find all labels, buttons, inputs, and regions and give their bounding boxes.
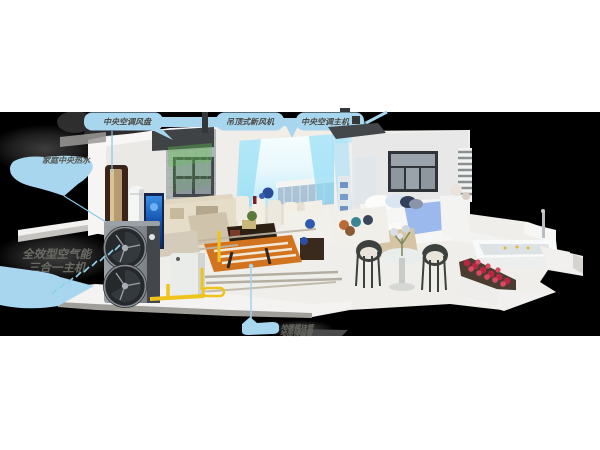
svg-text:全效型空气能: 全效型空气能 [22,247,92,261]
svg-text:家庭中央热水: 家庭中央热水 [42,156,91,165]
svg-text:中央空调风盘: 中央空调风盘 [103,118,152,127]
svg-text:地面铺设管: 地面铺设管 [280,330,314,338]
svg-text:中央空调主机: 中央空调主机 [301,118,350,127]
svg-text:吊顶式新风机: 吊顶式新风机 [226,118,275,127]
